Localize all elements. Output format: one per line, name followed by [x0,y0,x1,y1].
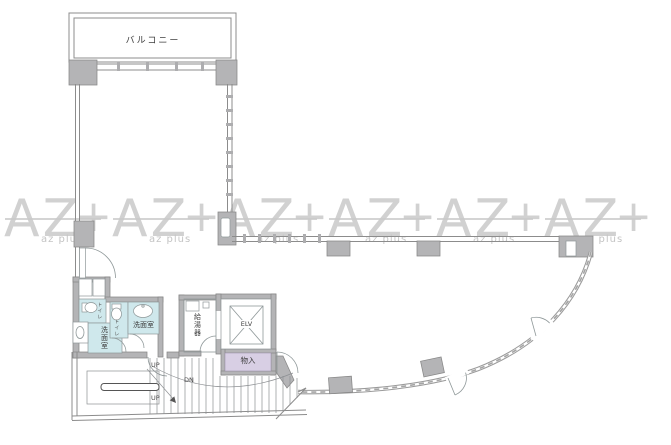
stairs-down-label: DN [184,377,194,384]
east-window-wall [218,84,236,245]
toilet-b-label: トイレ [113,319,118,337]
wet-rooms [73,279,159,353]
washroom-b-label: 洗面室 [128,322,159,330]
water-heater-label: 給湯器 [193,313,201,337]
balcony-label: バルコニー [70,37,236,47]
toilet-a-label: トイレ [96,302,101,320]
washroom-a-label: 洗面室 [100,326,108,350]
storage-label: 物入 [225,357,271,365]
north-window-wall [69,60,237,85]
floorplan-drawing [0,0,671,445]
middle-window-wall [232,234,593,257]
floorplan-page: AZ+az plus AZ+az plus AZ+az plus AZ+az p… [0,0,671,445]
elevator-label: ELV [231,321,262,328]
stairs-up-bottom-label: UP [151,395,160,402]
curved-facade [298,252,591,395]
stairs-up-top-label: UP [151,362,160,369]
